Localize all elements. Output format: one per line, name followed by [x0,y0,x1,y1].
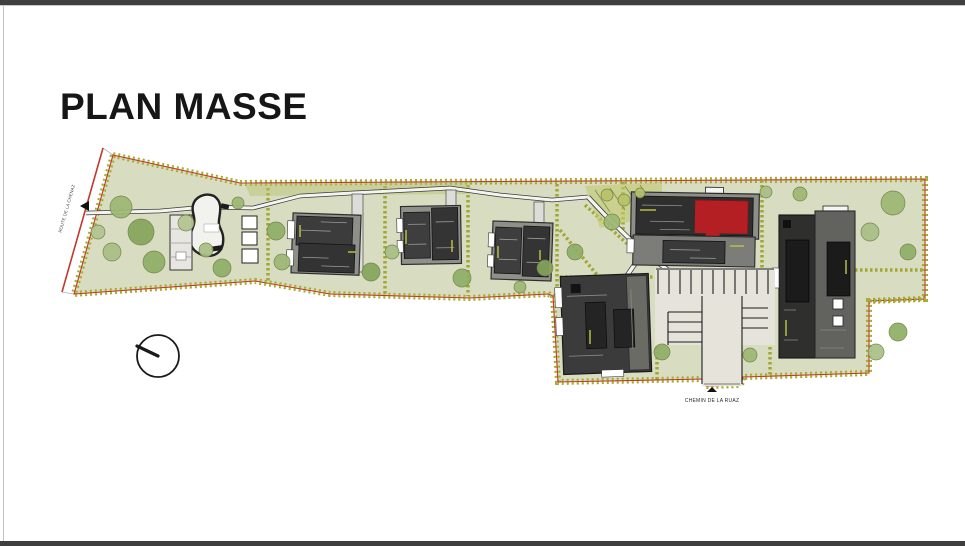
red-roof-section [695,200,749,234]
road-arrow-icon [80,201,89,211]
pond-label-box [204,224,219,232]
street-marker-icon [707,387,717,392]
building-east [772,206,855,358]
drawing-sheet: PLAN MASSE [0,0,965,546]
building-pair-1 [286,213,361,276]
building-annex-grey [627,235,756,267]
building-south [554,273,652,378]
site-plan-canvas [0,0,965,546]
north-compass-icon [137,335,179,377]
garden-sheds [242,216,258,263]
building-red-roof [631,186,760,241]
